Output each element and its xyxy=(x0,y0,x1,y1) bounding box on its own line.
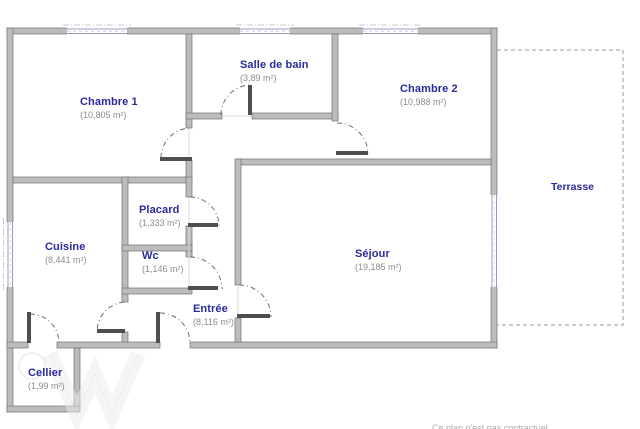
room-name: Placard xyxy=(139,204,181,216)
wall-sdb-chambre2-divider xyxy=(332,34,338,121)
room-label-cellier: Cellier (1,99 m²) xyxy=(28,367,65,392)
room-name: Chambre 1 xyxy=(80,96,138,108)
wall-bottom-seg1 xyxy=(7,342,28,348)
room-name: Séjour xyxy=(355,248,402,260)
room-name: Wc xyxy=(142,250,184,262)
window-sejour-terrasse xyxy=(491,195,498,287)
door-arc-cuisine xyxy=(97,302,124,332)
wall-placard-right-upper xyxy=(186,177,192,197)
door-arc-chambre2 xyxy=(337,123,368,154)
wall-bottom-seg2 xyxy=(57,342,160,348)
plan-disclaimer: Ce plan n'est pas contractuel xyxy=(432,423,548,429)
room-name: Cuisine xyxy=(45,241,87,253)
wall-cuisine-right-stub xyxy=(122,332,128,342)
room-label-chambre1: Chambre 1 (10,805 m²) xyxy=(80,96,138,121)
room-label-wc: Wc (1,146 m²) xyxy=(142,250,184,275)
door-leaf-cellier xyxy=(27,312,31,343)
door-arc-salle-de-bain xyxy=(221,85,251,115)
room-label-chambre2: Chambre 2 (10,988 m²) xyxy=(400,83,458,108)
wall-sejour-top xyxy=(237,159,491,165)
room-label-terrasse: Terrasse xyxy=(551,181,594,193)
wall-wc-bottom xyxy=(122,288,192,294)
floor-plan-page: Chambre 1 (10,805 m²) Salle de bain (3,8… xyxy=(0,0,640,429)
wall-bottom-seg3 xyxy=(190,342,497,348)
window-chambre2 xyxy=(359,25,422,35)
wall-right xyxy=(491,28,497,348)
floor-plan-drawing xyxy=(0,0,640,429)
door-leaf-chambre1 xyxy=(160,157,192,161)
room-name: Cellier xyxy=(28,367,65,379)
door-leaf-chambre2 xyxy=(336,151,368,155)
wall-sdb-bottom-right xyxy=(252,113,338,119)
wall-cellier-left xyxy=(7,348,13,412)
wall-sejour-left-lower xyxy=(235,318,241,342)
door-arc-placard xyxy=(190,197,219,226)
door-arc-cellier xyxy=(30,314,59,343)
room-name: Chambre 2 xyxy=(400,83,458,95)
wall-left xyxy=(7,28,13,348)
room-area: (1,99 m²) xyxy=(28,380,65,392)
room-label-cuisine: Cuisine (8,441 m²) xyxy=(45,241,87,266)
wall-sdb-bottom-left xyxy=(186,113,222,119)
room-label-placard: Placard (1,333 m²) xyxy=(139,204,181,229)
door-arc-wc xyxy=(190,257,222,289)
door-leaf-salle-de-bain xyxy=(248,85,252,115)
room-area: (8,116 m²) xyxy=(193,316,234,328)
door-arc-sejour xyxy=(239,285,271,317)
door-arc-chambre1 xyxy=(161,128,191,158)
window-cuisine xyxy=(4,218,14,291)
room-area: (10,805 m²) xyxy=(80,109,138,121)
door-leaf-placard xyxy=(188,223,218,227)
window-chambre1 xyxy=(63,25,131,35)
room-area: (1,333 m²) xyxy=(139,217,181,229)
room-area: (3,89 m²) xyxy=(240,72,309,84)
window-salle-de-bain xyxy=(236,25,294,35)
room-name: Terrasse xyxy=(551,181,594,193)
room-name: Entrée xyxy=(193,303,234,315)
room-label-sejour: Séjour (19,185 m²) xyxy=(355,248,402,273)
door-leaf-entree xyxy=(156,312,160,343)
room-label-salle-de-bain: Salle de bain (3,89 m²) xyxy=(240,59,309,84)
door-leaf-cuisine xyxy=(97,329,125,333)
room-label-entree: Entrée (8,116 m²) xyxy=(193,303,234,328)
room-area: (8,441 m²) xyxy=(45,254,87,266)
room-area: (10,988 m²) xyxy=(400,96,458,108)
wall-cuisine-right xyxy=(122,177,128,302)
room-area: (1,146 m²) xyxy=(142,263,184,275)
room-name: Salle de bain xyxy=(240,59,309,71)
door-leaf-wc xyxy=(188,286,218,290)
door-leaf-sejour xyxy=(237,314,270,318)
wall-sejour-left-upper xyxy=(235,159,241,285)
room-area: (19,185 m²) xyxy=(355,261,402,273)
door-arc-entree xyxy=(160,313,190,343)
wall-chambre1-bottom xyxy=(13,177,190,183)
